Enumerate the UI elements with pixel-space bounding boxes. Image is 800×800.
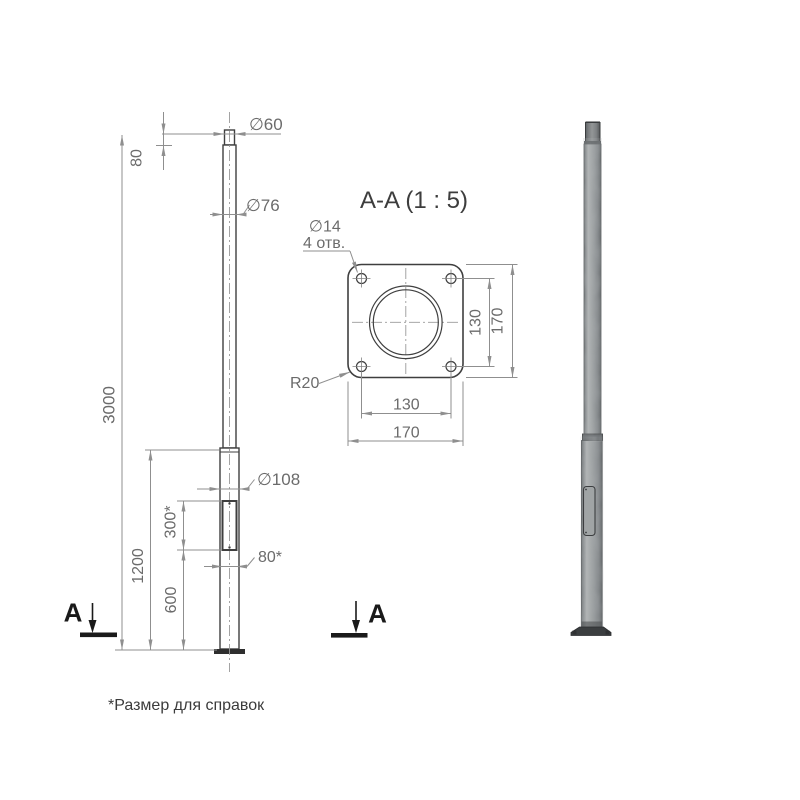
photo-spigot [586,123,601,143]
dim-hatch-height-label: 300* [163,506,180,539]
photo-base-flange [571,627,611,636]
plate-width-label: 170 [393,425,420,442]
section-view: A-A (1 : 5) ∅14 4 отв. [290,187,518,446]
plate-height-label: 170 [490,308,507,335]
leader-corner-radius: R20 [290,372,350,392]
dim-mid-diameter: ∅76 [210,196,280,217]
dim-base-diameter-label: ∅108 [257,470,300,489]
hole-count-label: 4 отв. [303,235,345,252]
pole-photo [571,122,611,636]
section-cut-marker-right: A [331,599,387,638]
section-cut-marker-left: A [64,598,117,638]
section-title: A-A (1 : 5) [360,187,468,214]
dim-mid-diameter-label: ∅76 [246,196,280,215]
section-letter-right: A [368,599,387,629]
dim-hatch-elevation-label: 600 [163,587,180,614]
drawing-canvas: ∅60 80 ∅76 3000 [0,0,800,800]
section-cut-arrow-icon [352,620,360,633]
dim-top-length: 80 [129,112,173,170]
dim-base-diameter: ∅108 [197,470,300,491]
dim-hatch-width: 80* [204,549,282,569]
front-view: ∅60 80 ∅76 3000 [64,112,388,672]
dim-top-diameter: ∅60 [162,115,283,136]
dim-top-diameter-label: ∅60 [249,115,283,134]
section-cut-arrow-icon [89,620,97,633]
hole-diameter-label: ∅14 [309,219,341,236]
technical-drawing-page: ∅60 80 ∅76 3000 [0,0,800,800]
corner-radius-label: R20 [290,375,319,392]
dim-hatch-width-label: 80* [258,549,282,566]
leader-hole-diameter: ∅14 4 отв. [303,219,358,273]
bolt-spacing-vertical-label: 130 [468,309,485,336]
dim-total-height: 3000 [100,135,125,650]
dim-hatch-height: 300* [163,501,222,550]
dim-bolt-spacing-horizontal: 130 [362,374,452,419]
dim-total-height-label: 3000 [100,386,119,424]
dim-top-length-label: 80 [129,149,146,167]
bolt-spacing-horizontal-label: 130 [393,397,420,414]
footnote: *Размер для справок [108,697,265,714]
dim-lower-section-label: 1200 [130,548,147,584]
section-letter-left: A [64,598,83,628]
photo-hatch-door [584,487,596,536]
